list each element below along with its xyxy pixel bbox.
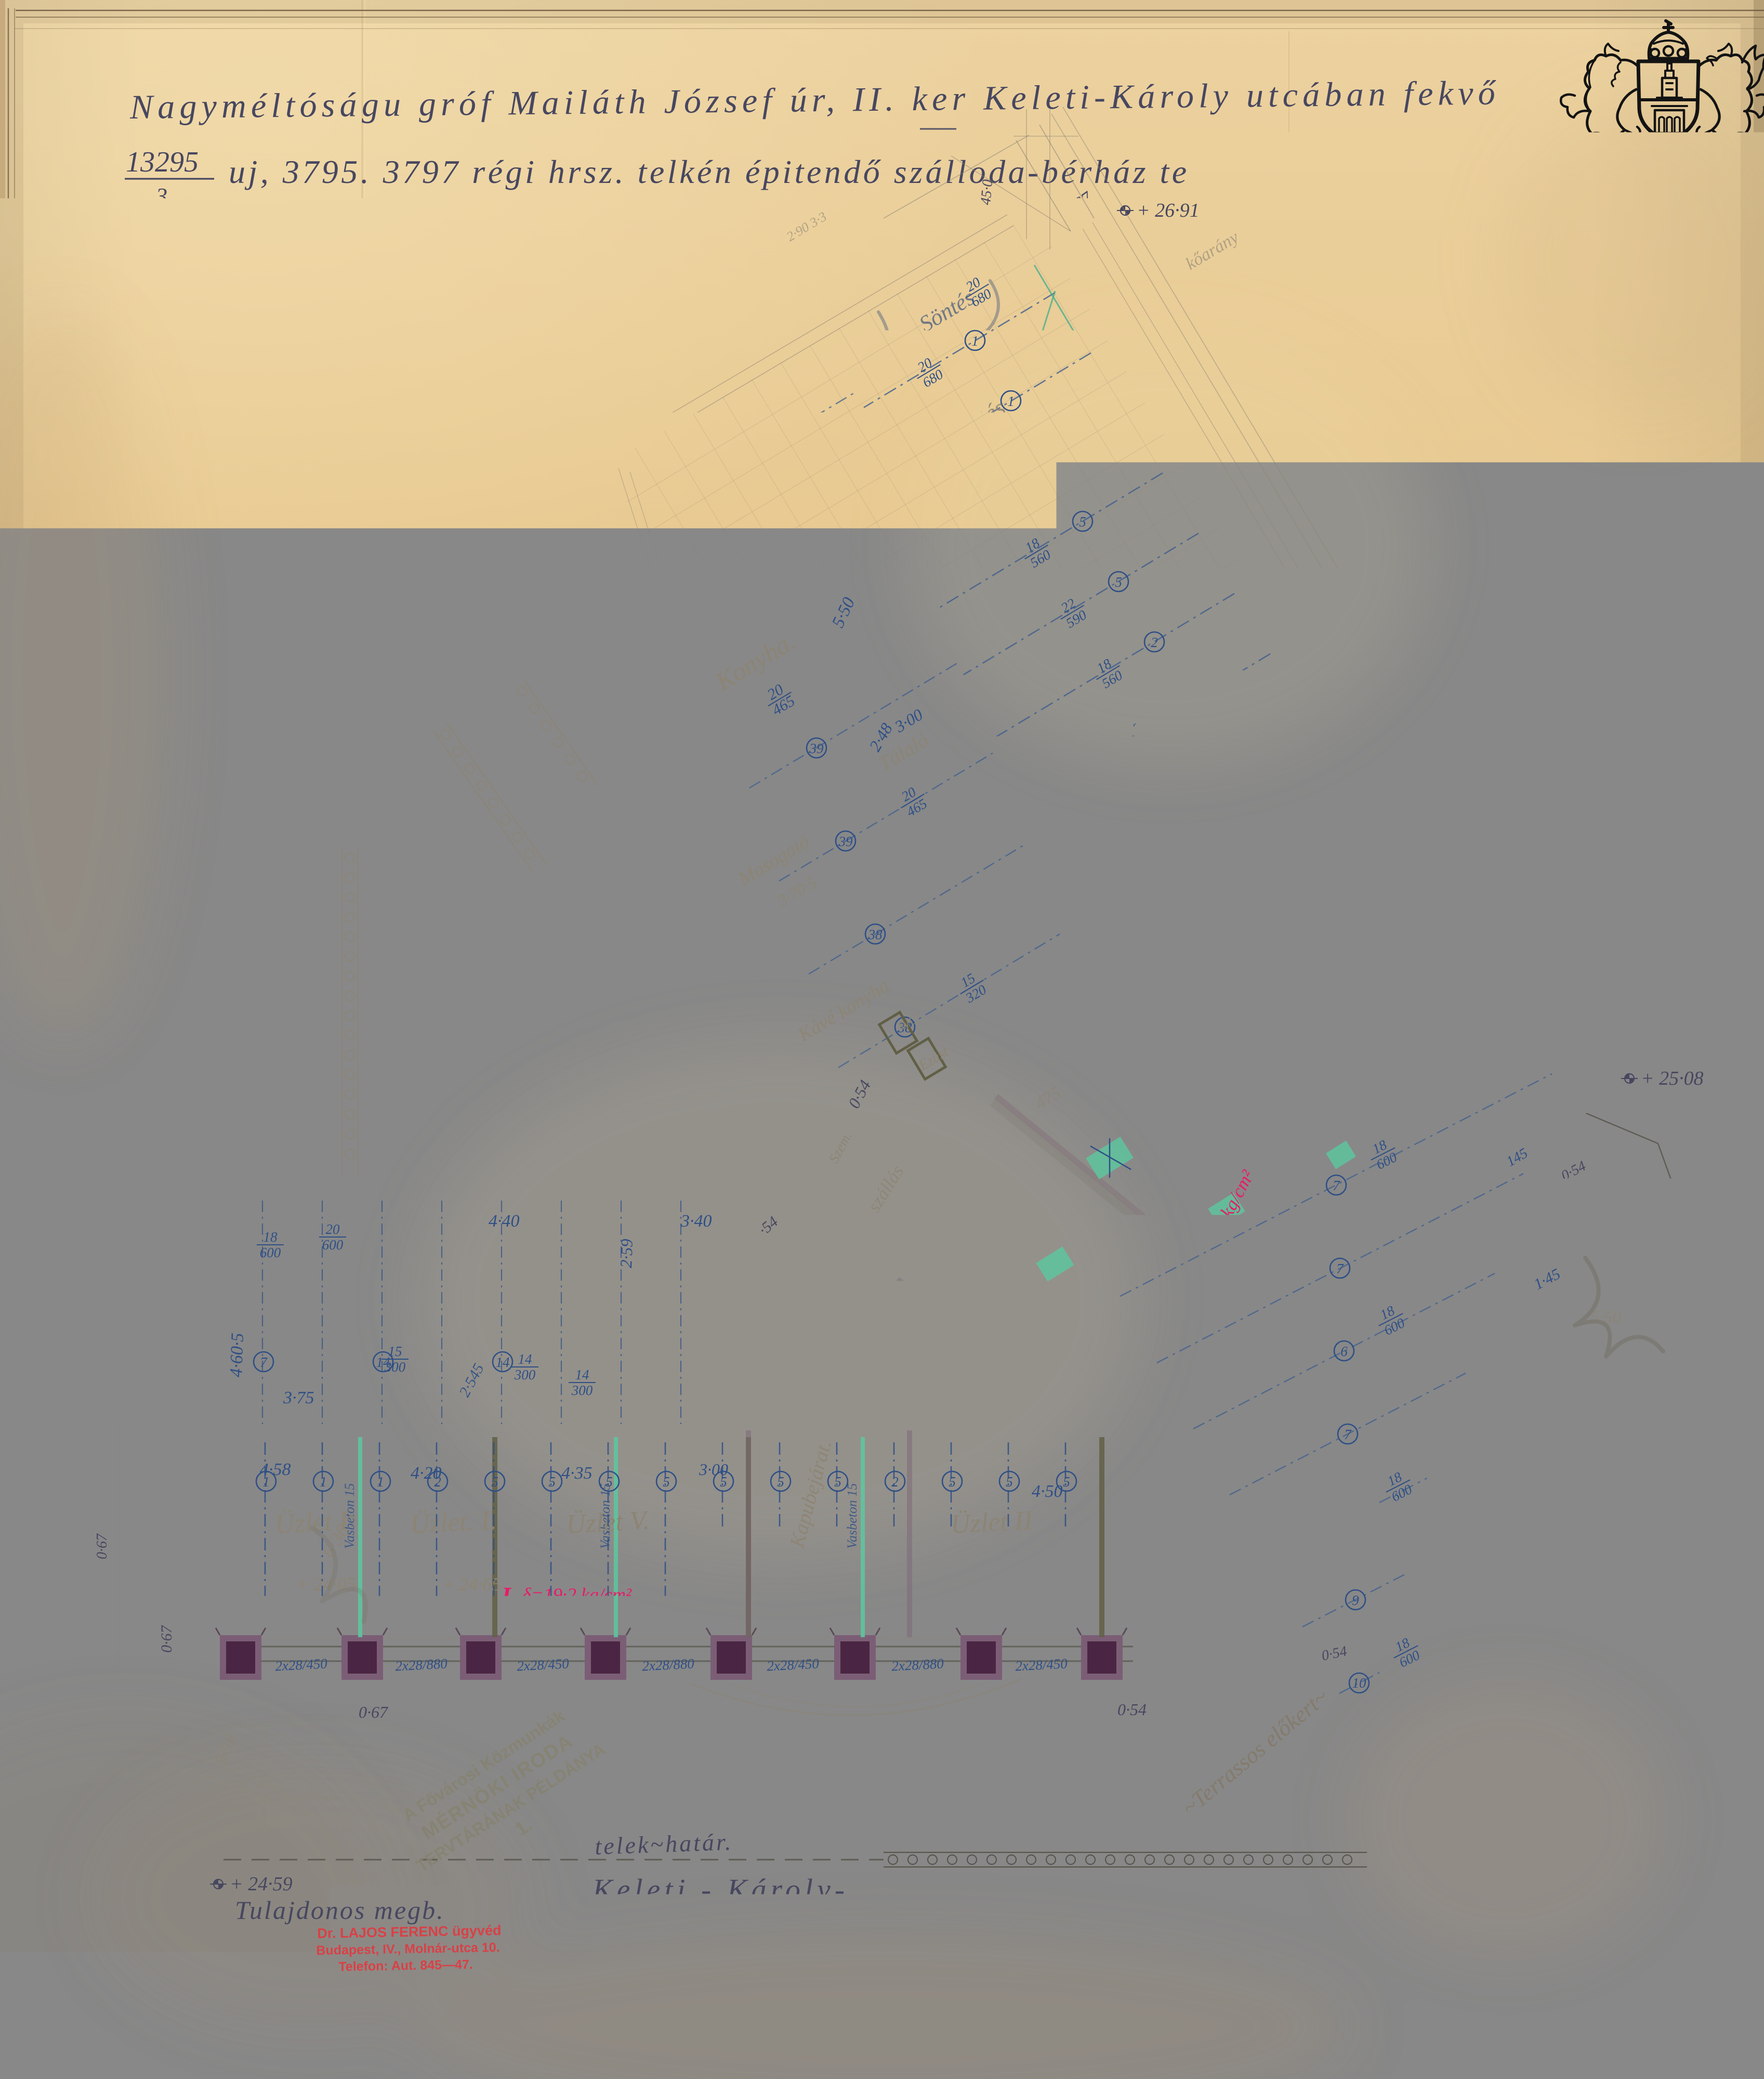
svg-text:.: . xyxy=(1727,2021,1733,2051)
svg-text:Tulajdonos megb.: Tulajdonos megb. xyxy=(235,1896,445,1925)
svg-text:27: 27 xyxy=(1233,1175,1248,1191)
svg-text:2x28/450: 2x28/450 xyxy=(517,1655,570,1674)
svg-text:24: 24 xyxy=(1117,1301,1131,1317)
svg-text:24: 24 xyxy=(1321,1050,1335,1066)
svg-text:+ 23·75: + 23·75 xyxy=(1421,1865,1487,1888)
svg-text:3: 3 xyxy=(155,183,167,209)
svg-text:10: 10 xyxy=(1254,1126,1268,1141)
svg-text:2·90: 2·90 xyxy=(1125,1672,1156,1691)
svg-text:2·59: 2·59 xyxy=(616,1239,636,1268)
svg-text:23: 23 xyxy=(1261,1102,1275,1118)
svg-text:0·54: 0·54 xyxy=(236,1166,264,1183)
svg-text:5: 5 xyxy=(1085,905,1092,920)
svg-text:2: 2 xyxy=(1223,980,1230,996)
svg-text:2x28/880: 2x28/880 xyxy=(395,1655,448,1674)
svg-text:5: 5 xyxy=(1052,1516,1060,1531)
svg-text:2x28/880: 2x28/880 xyxy=(891,1655,944,1674)
svg-text:2x28/880: 2x28/880 xyxy=(642,1655,695,1674)
svg-text:22: 22 xyxy=(1032,1348,1046,1364)
svg-text:0·67: 0·67 xyxy=(359,1703,389,1721)
svg-text:9: 9 xyxy=(1263,1591,1271,1607)
svg-text:5: 5 xyxy=(1269,588,1276,603)
svg-text:4: 4 xyxy=(1409,1219,1416,1235)
svg-text:Üzlet. I.: Üzlet. I. xyxy=(410,1505,497,1539)
svg-text:Fehérmész-hab. falazat.: Fehérmész-hab. falazat. xyxy=(1403,280,1630,305)
svg-text:Földszint: Földszint xyxy=(264,249,469,303)
svg-text:2·60: 2·60 xyxy=(260,1204,289,1222)
svg-text:32: 32 xyxy=(1215,1336,1230,1352)
svg-text:2x28/450: 2x28/450 xyxy=(767,1655,820,1674)
svg-text:telek~határ.: telek~határ. xyxy=(595,1828,733,1860)
svg-text:5: 5 xyxy=(1222,755,1229,770)
svg-text:4·60·5: 4·60·5 xyxy=(142,1271,160,1310)
svg-text:22: 22 xyxy=(794,1467,808,1482)
svg-text:020: 020 xyxy=(244,1000,268,1017)
svg-text:5: 5 xyxy=(720,1474,727,1490)
svg-text:Bpest 1929 Jan. 22: Bpest 1929 Jan. 22 xyxy=(1510,2015,1717,2045)
svg-text:14: 14 xyxy=(1167,1244,1181,1260)
svg-text:Vasbeton 15: Vasbeton 15 xyxy=(845,1483,860,1549)
svg-text:18: 18 xyxy=(985,1407,999,1423)
svg-text:0·54: 0·54 xyxy=(385,1166,412,1183)
svg-text:+ 24·50: + 24·50 xyxy=(1447,1596,1510,1618)
svg-text:Portl. cementtel. javitott feh: Portl. cementtel. javitott feh.mész.f. xyxy=(1403,314,1740,339)
svg-text:5: 5 xyxy=(1172,1599,1179,1614)
svg-text:32: 32 xyxy=(1297,1288,1312,1304)
svg-text:27: 27 xyxy=(1032,1102,1047,1118)
svg-text:600: 600 xyxy=(322,1237,344,1253)
svg-text:13295: 13295 xyxy=(126,146,199,178)
svg-text:0·67: 0·67 xyxy=(600,1412,630,1430)
svg-text:26: 26 xyxy=(1386,1076,1401,1092)
svg-text:Portl. cement falazat.: Portl. cement falazat. xyxy=(1403,349,1607,373)
svg-text:7: 7 xyxy=(1336,1261,1344,1277)
svg-text:Házmester: Házmester xyxy=(357,1220,466,1253)
svg-text:24·65: 24·65 xyxy=(807,1425,847,1444)
svg-text:3·40: 3·40 xyxy=(680,1212,712,1231)
svg-text:7: 7 xyxy=(1348,1509,1355,1525)
svg-text:24: 24 xyxy=(983,1527,997,1543)
svg-text:18: 18 xyxy=(914,1433,929,1449)
svg-text:4·50: 4·50 xyxy=(1032,1482,1063,1501)
svg-text:2x28/450: 2x28/450 xyxy=(1015,1655,1068,1674)
svg-text:300: 300 xyxy=(514,1367,536,1383)
svg-text:5: 5 xyxy=(1063,1474,1070,1490)
svg-text:2: 2 xyxy=(1258,815,1265,831)
svg-text:+ 26·91: + 26·91 xyxy=(1137,200,1200,221)
svg-text:25: 25 xyxy=(983,1271,997,1287)
svg-text:38: 38 xyxy=(868,927,883,942)
svg-text:3·40: 3·40 xyxy=(301,994,333,1014)
svg-text:0·54: 0·54 xyxy=(613,1166,641,1183)
svg-text:7: 7 xyxy=(260,1354,268,1370)
svg-text:0·40: 0·40 xyxy=(364,1000,391,1017)
svg-text:5: 5 xyxy=(1332,705,1339,720)
svg-text:0·67: 0·67 xyxy=(252,1412,282,1430)
svg-text:20: 20 xyxy=(326,1221,340,1237)
svg-text:20: 20 xyxy=(770,1436,785,1451)
svg-text:1: 1 xyxy=(262,1474,270,1490)
svg-text:5: 5 xyxy=(1329,936,1337,951)
svg-text:1: 1 xyxy=(377,1474,384,1490)
svg-text:Színmagyarázat:: Színmagyarázat: xyxy=(1319,230,1502,259)
svg-text:5: 5 xyxy=(1038,736,1046,752)
svg-text:Szoba: Szoba xyxy=(269,1265,327,1294)
svg-text:2: 2 xyxy=(1220,1648,1228,1664)
svg-text:9: 9 xyxy=(1352,1593,1359,1608)
svg-text:2: 2 xyxy=(1365,996,1373,1011)
svg-text:520: 520 xyxy=(1041,1564,1062,1580)
svg-text:+ 26·00: + 26·00 xyxy=(261,660,324,681)
svg-text:2·70: 2·70 xyxy=(720,1204,749,1222)
svg-text:+ 24·65: + 24·65 xyxy=(993,1543,1052,1563)
svg-text:5: 5 xyxy=(1294,875,1301,891)
svg-text:5: 5 xyxy=(491,1474,498,1490)
svg-text:2: 2 xyxy=(1400,820,1407,836)
svg-text:41: 41 xyxy=(721,462,735,477)
svg-text:0·67: 0·67 xyxy=(158,1625,175,1653)
svg-text:10: 10 xyxy=(1339,1578,1354,1594)
svg-text:Tufa-tégla: Tufa-tégla xyxy=(1403,384,1500,409)
svg-text:39: 39 xyxy=(809,741,824,756)
svg-text:2: 2 xyxy=(434,1474,441,1490)
svg-text:Tervező műépítész:: Tervező műépítész: xyxy=(1420,1907,1645,1936)
svg-text:+ 25·35: + 25·35 xyxy=(783,529,839,548)
svg-text:7: 7 xyxy=(1333,1178,1340,1193)
svg-text:5: 5 xyxy=(777,1474,784,1490)
svg-text:22: 22 xyxy=(824,1557,838,1573)
svg-text:4·40: 4·40 xyxy=(489,1212,520,1231)
svg-text:uj, 3795. 3797 régi hrsz. telk: uj, 3795. 3797 régi hrsz. telkén épitend… xyxy=(229,153,1252,190)
svg-text:+ 25·08: + 25·08 xyxy=(1641,1068,1704,1089)
svg-text:5: 5 xyxy=(1113,1568,1120,1583)
svg-text:18: 18 xyxy=(264,1229,278,1245)
svg-text:13: 13 xyxy=(803,1499,817,1515)
svg-text:1: 1 xyxy=(320,1474,327,1490)
svg-text:0·67: 0·67 xyxy=(1013,1412,1044,1430)
svg-text:15: 15 xyxy=(388,1344,402,1359)
svg-text:Keleti - Károly- útca: Keleti - Károly- útca xyxy=(592,1873,929,1906)
svg-text:45·0: 45·0 xyxy=(569,496,587,523)
svg-text:+ 24·65: + 24·65 xyxy=(442,1574,501,1595)
svg-text:540: 540 xyxy=(790,1482,811,1498)
svg-text:III.: III. xyxy=(1230,1279,1263,1305)
svg-text:Felelős építőmester:: Felelős építőmester: xyxy=(773,1906,1018,1935)
svg-text:7: 7 xyxy=(1344,1427,1352,1442)
svg-text:0·67: 0·67 xyxy=(94,1533,110,1559)
svg-text:5: 5 xyxy=(605,1474,613,1490)
svg-text:9: 9 xyxy=(1267,1217,1274,1232)
svg-text:1:100.: 1:100. xyxy=(482,254,603,298)
svg-text:Budapest, VIII., Rákóczi-út 63: Budapest, VIII., Rákóczi-út 63. I. xyxy=(1465,1997,1636,2010)
svg-text:540: 540 xyxy=(767,1451,788,1467)
svg-text:5: 5 xyxy=(663,1474,670,1490)
svg-text:0·54: 0·54 xyxy=(1117,1700,1147,1719)
svg-text:550: 550 xyxy=(119,1102,136,1125)
svg-text:Tufa-lap.: Tufa-lap. xyxy=(1403,418,1490,443)
svg-text:Budapest Főváros Levéltára: Budapest Főváros Levéltára xyxy=(1584,163,1739,179)
svg-text:Dr. LAJOS FERENC ügyvéd: Dr. LAJOS FERENC ügyvéd xyxy=(317,1923,502,1941)
svg-text:28: 28 xyxy=(1157,1131,1172,1147)
svg-text:2: 2 xyxy=(1151,635,1158,650)
svg-text:Vasbeton .: Vasbeton . xyxy=(1403,453,1500,477)
svg-text:1: 1 xyxy=(1129,357,1137,372)
svg-text:5: 5 xyxy=(1401,1056,1408,1072)
svg-text:+ 24·59: + 24·59 xyxy=(230,1873,293,1895)
svg-text:3·40: 3·40 xyxy=(142,1335,160,1363)
svg-text:600: 600 xyxy=(260,1245,281,1260)
svg-text:14: 14 xyxy=(496,1354,510,1370)
svg-text:300: 300 xyxy=(571,1383,593,1398)
svg-text:2: 2 xyxy=(1197,473,1204,489)
svg-text:6: 6 xyxy=(1340,1344,1348,1359)
svg-text:7: 7 xyxy=(1278,1531,1285,1547)
